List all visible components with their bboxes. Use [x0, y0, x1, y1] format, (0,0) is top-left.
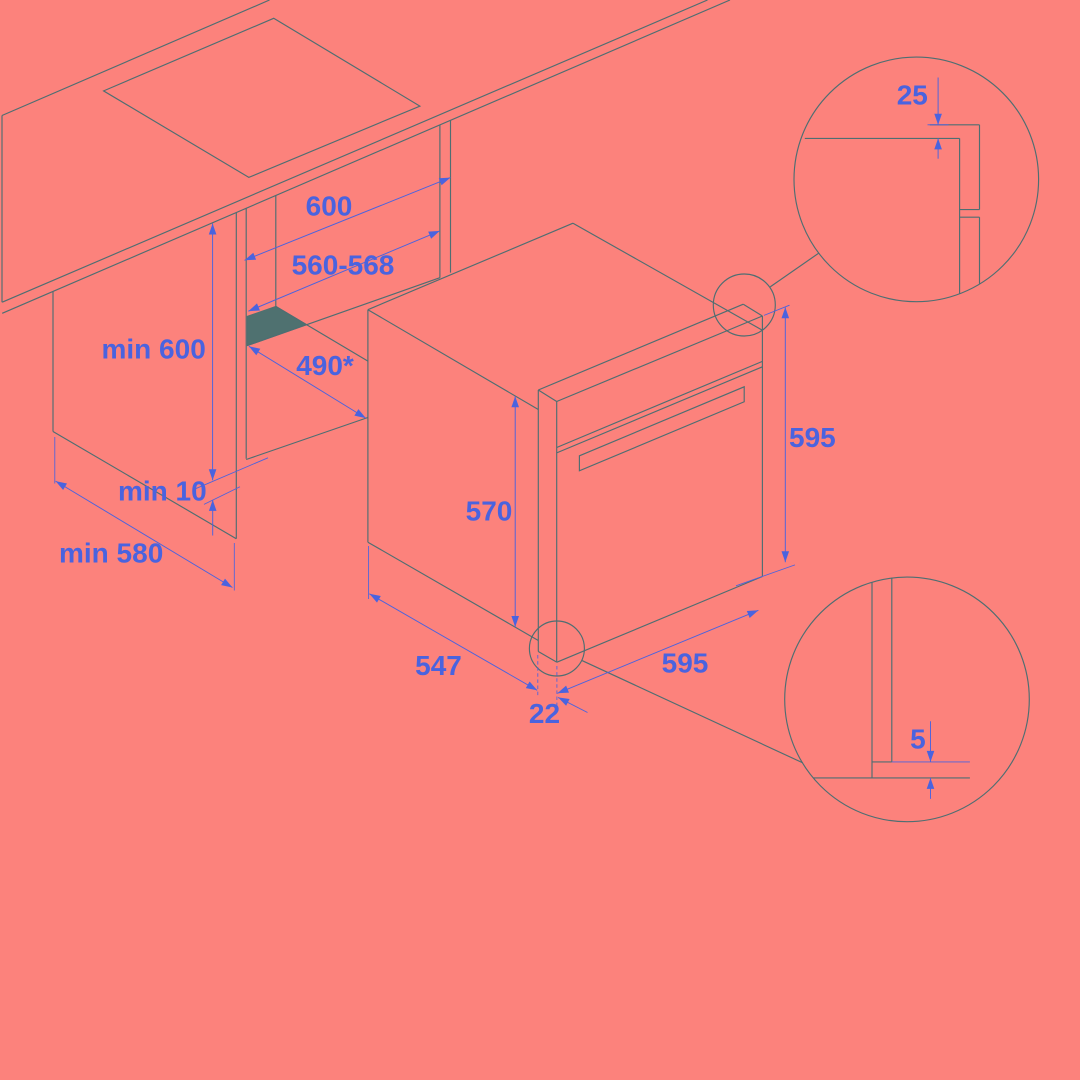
svg-text:560-568: 560-568 [292, 250, 395, 281]
svg-text:22: 22 [529, 698, 560, 729]
svg-text:min 600: min 600 [102, 334, 206, 365]
svg-text:547: 547 [415, 650, 462, 681]
svg-text:min 580: min 580 [59, 538, 163, 569]
svg-text:25: 25 [897, 80, 928, 111]
svg-text:5: 5 [910, 724, 926, 755]
svg-text:595: 595 [789, 422, 836, 453]
svg-text:490*: 490* [296, 350, 354, 381]
svg-text:570: 570 [466, 496, 513, 527]
svg-text:595: 595 [662, 648, 709, 679]
svg-text:min 10: min 10 [118, 476, 207, 507]
svg-text:600: 600 [306, 191, 353, 222]
